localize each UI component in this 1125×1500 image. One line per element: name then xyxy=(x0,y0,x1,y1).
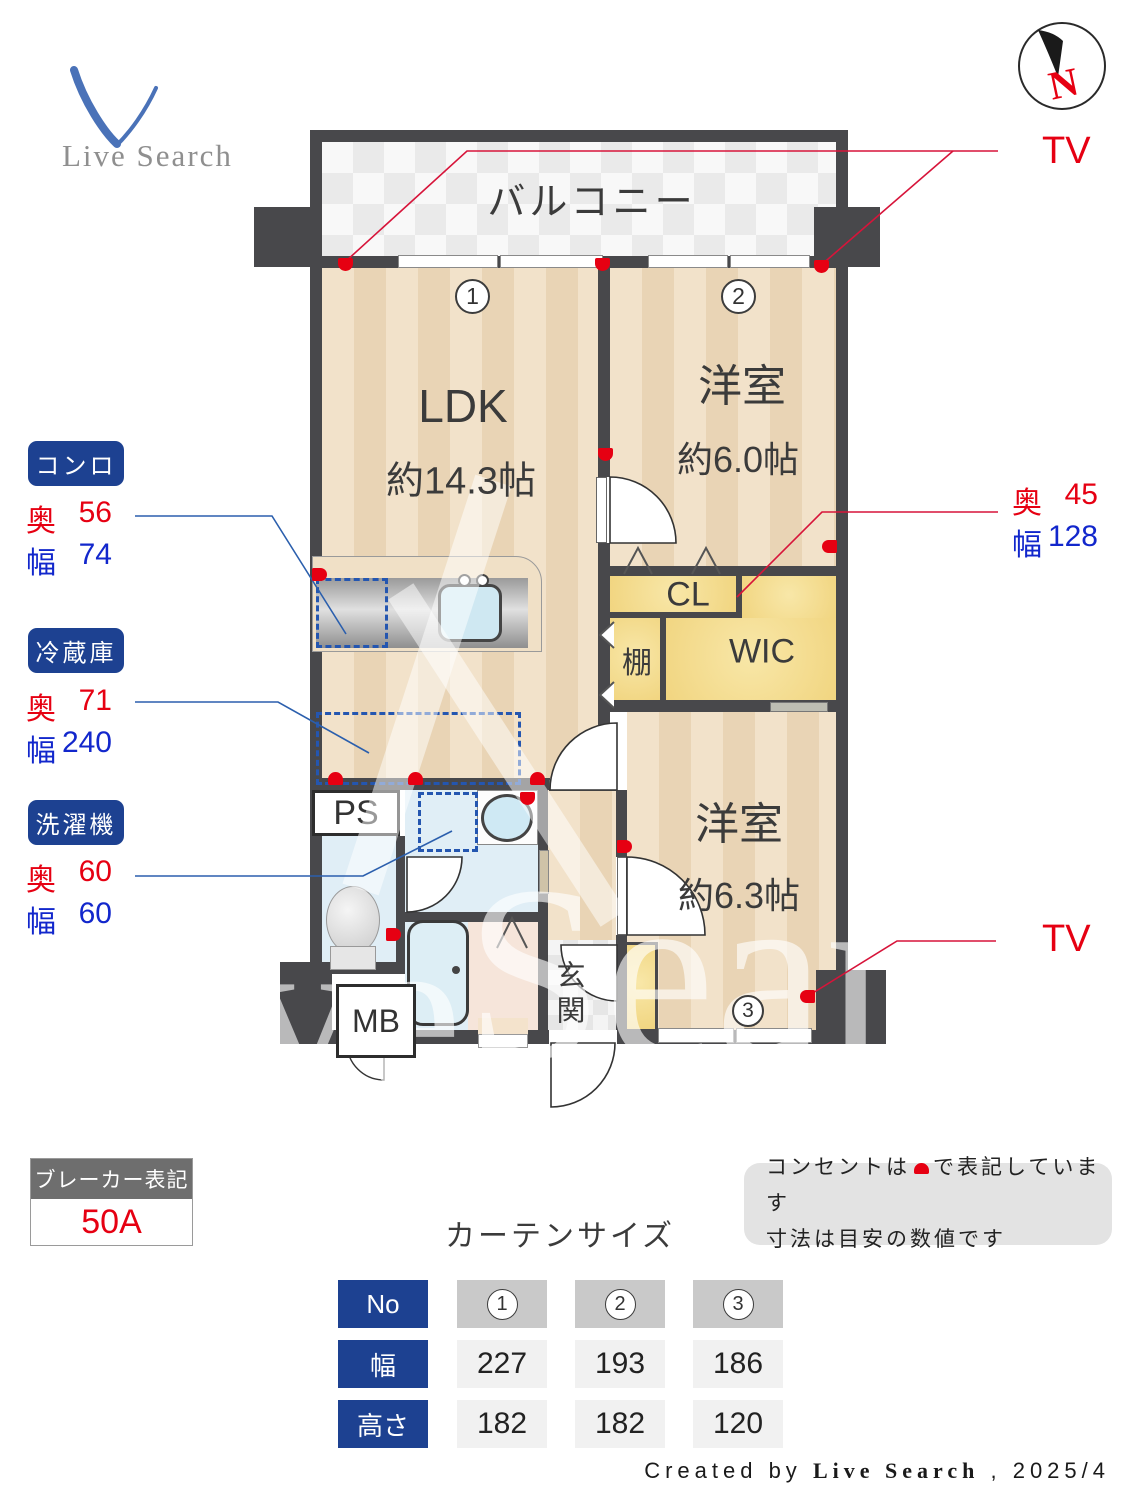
depth-label: 奥 xyxy=(1012,478,1042,522)
depth-label: 奥 xyxy=(26,496,56,540)
stove-depth: 奥56 xyxy=(26,496,112,540)
outlet-dot xyxy=(328,772,343,785)
washer-badge: 洗濯機 xyxy=(28,800,124,845)
room3-number: 3 xyxy=(742,999,754,1023)
credit-suffix: , 2025/4 xyxy=(990,1458,1110,1483)
curtain-table-title: カーテンサイズ xyxy=(445,1211,675,1255)
depth-label: 奥 xyxy=(26,684,56,728)
closet-depth: 奥45 xyxy=(1012,478,1098,522)
closet-width: 幅128 xyxy=(1012,520,1098,564)
breaker-value: 50A xyxy=(31,1199,192,1245)
tv-label-bottom: TV xyxy=(1042,918,1091,961)
outlet-dot xyxy=(800,990,815,1003)
depth-value: 71 xyxy=(79,684,112,728)
fridge-title: 冷蔵庫 xyxy=(36,633,117,668)
width-label: 幅 xyxy=(26,726,56,770)
width-value: 240 xyxy=(62,726,112,770)
col3-number: 3 xyxy=(732,1293,743,1316)
logo-text: Live Search xyxy=(62,138,233,174)
room2-name: 洋室 xyxy=(698,350,786,414)
ldk-number: 1 xyxy=(466,283,479,310)
stove-title: コンロ xyxy=(36,446,117,481)
curtain-col1-badge: 1 xyxy=(487,1289,518,1320)
depth-label: 奥 xyxy=(26,855,56,899)
width-label: 幅 xyxy=(26,538,56,582)
depth-value: 60 xyxy=(79,855,112,899)
wic-label: WIC xyxy=(729,633,795,672)
width-value: 74 xyxy=(79,538,112,582)
curtain-col3-badge: 3 xyxy=(723,1289,754,1320)
room3-number-badge: 3 xyxy=(732,995,764,1027)
outlet-dot xyxy=(530,772,545,785)
washer-depth: 奥60 xyxy=(26,855,112,899)
outlet-dot xyxy=(386,928,401,941)
depth-value: 56 xyxy=(79,496,112,540)
entrance-label: 玄関 xyxy=(547,960,589,1030)
shelf-label: 棚 xyxy=(622,638,652,682)
cl-label: CL xyxy=(666,576,709,615)
col2-number: 2 xyxy=(614,1293,625,1316)
breaker-title: ブレーカー表記 xyxy=(31,1159,192,1199)
tv-top-line2 xyxy=(820,151,953,266)
depth-value: 45 xyxy=(1065,478,1098,522)
stove-width: 幅74 xyxy=(26,538,112,582)
credit-line: Created by Live Search , 2025/4 xyxy=(0,1458,1110,1484)
outlet-dot xyxy=(408,772,423,785)
washer-title: 洗濯機 xyxy=(36,805,117,840)
ldk-name: LDK xyxy=(418,379,507,433)
room3-size: 約6.3帖 xyxy=(678,867,800,919)
outlet-dot xyxy=(312,568,327,581)
room2-number: 2 xyxy=(732,283,745,310)
width-value: 60 xyxy=(79,897,112,941)
balcony-label: バルコニー xyxy=(487,171,696,226)
width-value: 128 xyxy=(1048,520,1098,564)
tv-label-top: TV xyxy=(1042,130,1091,173)
outlet-dot xyxy=(822,540,837,553)
col1-number: 1 xyxy=(496,1293,507,1316)
closet-dim-line xyxy=(737,512,998,597)
outlet-dot xyxy=(617,840,632,853)
credit-prefix: Created by xyxy=(644,1458,802,1483)
washer-width: 幅60 xyxy=(26,897,112,941)
ldk-size: 約14.3帖 xyxy=(386,450,536,505)
width-label: 幅 xyxy=(26,897,56,941)
stove-badge: コンロ xyxy=(28,441,124,486)
fridge-badge: 冷蔵庫 xyxy=(28,628,124,673)
tv-bottom-line xyxy=(808,941,996,996)
fridge-depth: 奥71 xyxy=(26,684,112,728)
washer-line xyxy=(135,831,452,876)
width-label: 幅 xyxy=(1012,520,1042,564)
ldk-number-badge: 1 xyxy=(455,279,490,314)
fridge-line xyxy=(135,702,369,753)
room3-name: 洋室 xyxy=(695,788,783,852)
room2-size: 約6.0帖 xyxy=(677,431,799,483)
curtain-col2-badge: 2 xyxy=(605,1289,636,1320)
room2-number-badge: 2 xyxy=(721,279,756,314)
floorplan-page: Live Search N xyxy=(0,0,1125,1500)
breaker-box: ブレーカー表記 50A xyxy=(30,1158,193,1246)
fridge-width: 幅240 xyxy=(26,726,112,770)
credit-brand: Live Search xyxy=(813,1458,979,1483)
